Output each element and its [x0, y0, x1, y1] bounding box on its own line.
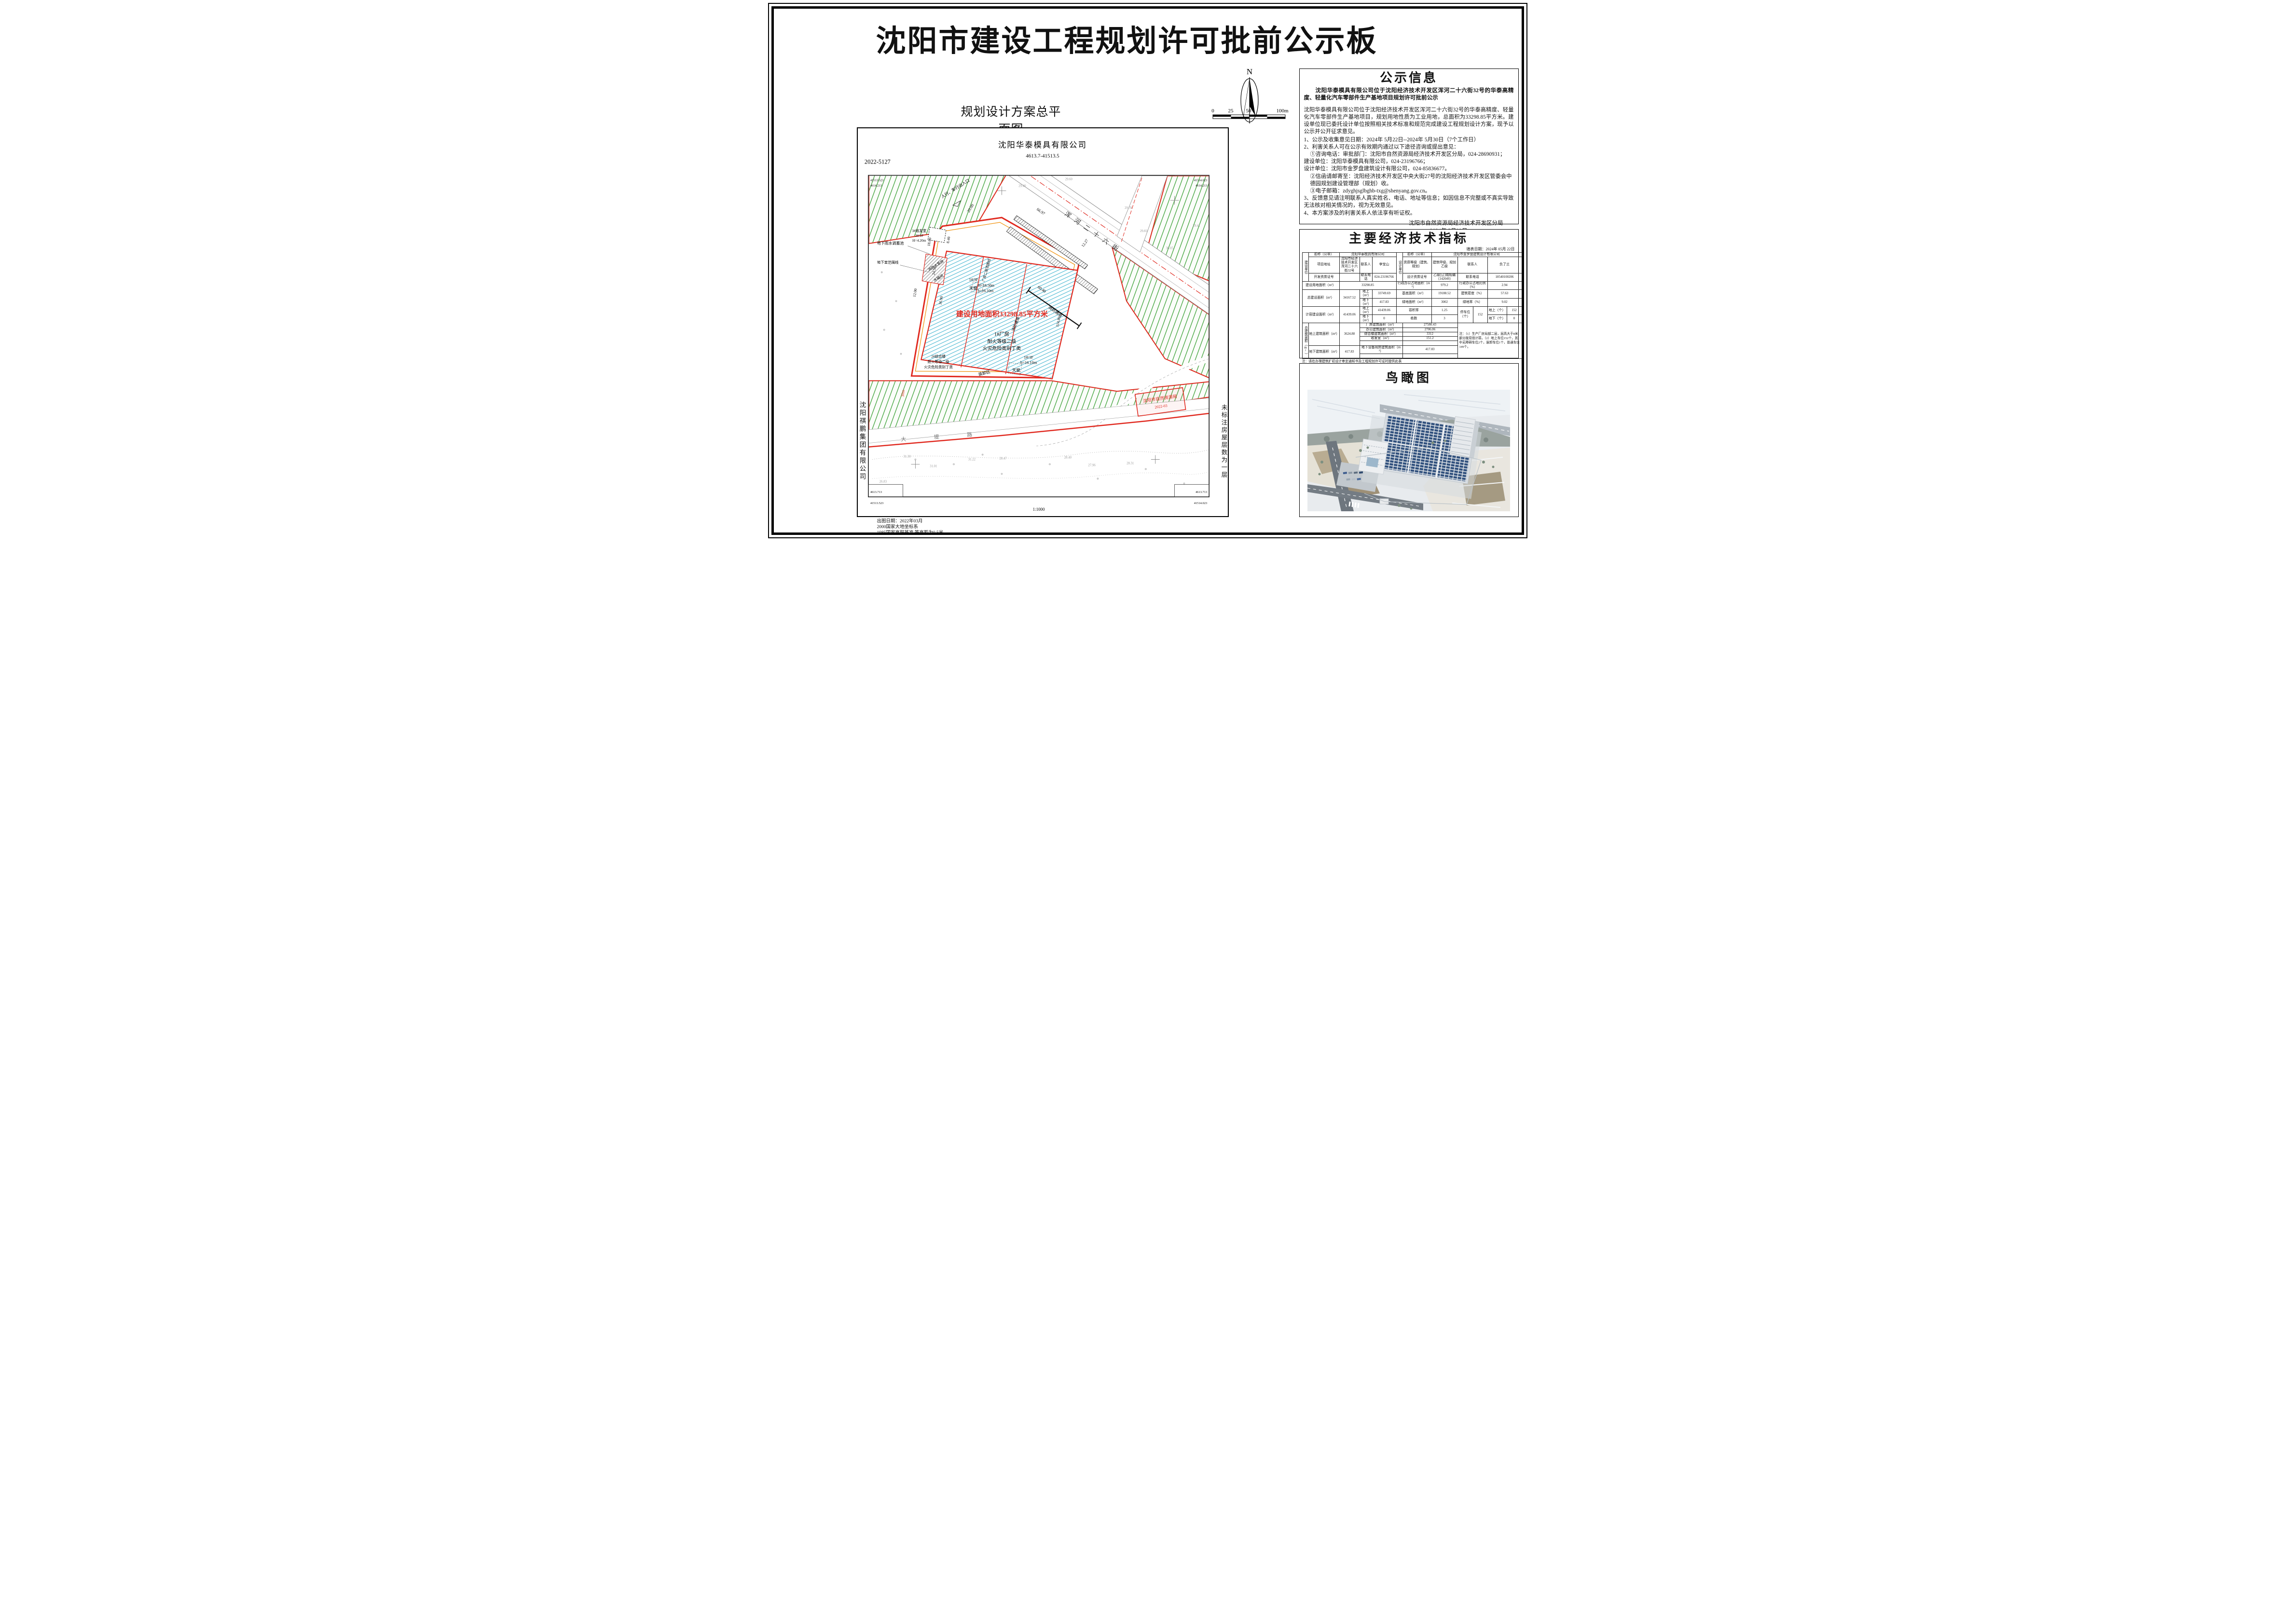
cell: 沈阳市经济技术开发区浑河二十六街32号: [1339, 257, 1360, 273]
indicators-date: 填表日期：2024年 05月 22日: [1302, 247, 1515, 252]
cell-gfa: 总建筑面积（m²）: [1302, 323, 1308, 359]
cell: 3002: [1431, 298, 1457, 306]
notice-items: 1、公示及收集意见日期：2024年 5月22日--2024年 5月30日（7个工…: [1304, 136, 1514, 217]
plan-company-name: 沈阳华泰模具有限公司: [998, 140, 1087, 150]
cell: 建筑密度（%）: [1457, 290, 1487, 298]
cell: 总建设面积（m²）: [1302, 290, 1339, 307]
cell: 收发室（m²）: [1360, 336, 1402, 341]
svg-text:26.83: 26.83: [879, 480, 887, 483]
complex-building-label: 2#综合楼: [931, 354, 946, 359]
cell: 地上（m²）: [1360, 290, 1372, 298]
svg-text:27.96: 27.96: [1088, 464, 1096, 467]
svg-text:31.22: 31.22: [968, 458, 975, 462]
scale-bar: 0 25 50 100m: [1210, 107, 1292, 123]
site-plan-drawing: 沈阳华泰模具有限公司 4613.7-41513.5 2022-5127: [858, 128, 1228, 516]
cell: 绿地面积（m²）: [1396, 298, 1431, 306]
cell: 18540100206: [1487, 273, 1522, 281]
page-title: 沈阳市建设工程规划许可批前公示板: [876, 24, 1339, 59]
cell-unit-left: 建设单位: [1302, 253, 1308, 282]
svg-text:41513.523: 41513.523: [870, 178, 883, 182]
cell: 地下（m²）: [1360, 298, 1372, 306]
notice-signature: 沈阳市自然资源局经济技术开发区分局: [1304, 219, 1514, 227]
cell: 联系电话: [1360, 273, 1372, 281]
cell: 名称（公章）: [1402, 253, 1431, 257]
cell: 9.02: [1487, 298, 1522, 306]
table-row: 项目地址 沈阳市经济技术开发区浑河二十六街32号 联系人 李宝山 资质等级（建筑…: [1302, 257, 1522, 273]
rain-tank-label: 地下雨水调蓄池: [877, 241, 904, 246]
cell: [1360, 354, 1402, 359]
cell: [1360, 341, 1402, 345]
basement-line-label: 地下室范围线: [877, 260, 898, 265]
cell: 地上建筑面积（m²）: [1308, 323, 1339, 346]
cell: 27580.43: [1402, 323, 1457, 328]
notice-title: 公示信息: [1304, 71, 1514, 85]
cell: 024-23196766: [1372, 273, 1396, 281]
scale-tick: 25: [1228, 108, 1234, 114]
table-row: 计容建设面积（m²） 41439.06 地上（m²） 41439.06 容积率 …: [1302, 306, 1522, 314]
skylight-label: 天窗: [969, 286, 977, 290]
indicators-section: 主要经济技术指标 填表日期：2024年 05月 22日 建设单位 名称（公章） …: [1299, 229, 1519, 358]
height-label: h=16.10m: [1020, 360, 1037, 365]
cell: 417.83: [1402, 345, 1457, 354]
svg-text:4613.713: 4613.713: [870, 491, 881, 494]
fire-grade-label: 耐火等级二级: [927, 359, 949, 364]
notice-item: ③电子邮箱：zdyghjsglbghb-txg@shenyang.gov.cn。: [1304, 188, 1514, 195]
building-floors-label: 1#/1F: [1024, 355, 1033, 360]
cell: 417.83: [1339, 345, 1360, 358]
cell: 979.2: [1431, 281, 1457, 289]
cell: 建筑甲级、规划乙级: [1431, 257, 1457, 273]
cell: 152: [1473, 306, 1487, 323]
svg-text:28.40: 28.40: [1064, 456, 1072, 460]
cell: 地上（个）: [1487, 306, 1507, 314]
hazard-class-label: 火灾危险类别丁类: [982, 345, 1021, 352]
notice-item: 建设单位：沈阳华泰模具有限公司，024-23196766；: [1304, 158, 1514, 165]
cell: 沈阳华泰模具有限公司: [1339, 253, 1396, 257]
cell: 厂房建筑面积（m²）: [1360, 323, 1402, 328]
cell: 联系人: [1360, 257, 1372, 273]
notice-body: 沈阳华泰模具有限公司位于沈阳经济技术开发区浑河二十六街32号的华泰高精度、轻量化…: [1304, 107, 1514, 136]
skylight-label: 天窗: [1012, 368, 1020, 372]
cell: 0: [1372, 315, 1396, 323]
plan-note-date: 出图日期：2022年03月: [877, 519, 923, 524]
cell: 容积率: [1396, 306, 1431, 314]
cell: 资质等级（建筑、规划）: [1402, 257, 1431, 273]
svg-text:29.60: 29.60: [1065, 177, 1072, 181]
site-plan-sheet: 沈阳华泰模具有限公司 4613.7-41513.5 2022-5127: [857, 127, 1229, 517]
compass-n-label: N: [1246, 67, 1252, 76]
cell: 地下（m²）: [1360, 315, 1372, 323]
cell: [1339, 273, 1360, 281]
cell: 联系电话: [1457, 273, 1487, 281]
notice-item: 1、公示及收集意见日期：2024年 5月22日--2024年 5月30日（7个工…: [1304, 136, 1514, 144]
cell: 联系人: [1457, 257, 1487, 273]
cell: 地下建筑面积（m²）: [1308, 345, 1339, 358]
cell: 负了兰: [1487, 257, 1522, 273]
cell: 33749.69: [1372, 290, 1396, 298]
cell: 行政办公占地比例（%）: [1457, 281, 1487, 289]
table-row: 总建筑面积（m²） 地上建筑面积（m²） 3624.88 厂房建筑面积（m²） …: [1302, 323, 1522, 328]
cell: 设计资质证号: [1402, 273, 1431, 281]
svg-text:31.30: 31.30: [903, 455, 911, 459]
cell: 办公建筑面积（m²）: [1360, 328, 1402, 332]
cell: 152: [1507, 306, 1522, 314]
cell: 建设用地面积（m²）: [1302, 281, 1339, 289]
cell-note: 注：（1）生产厂房局部二层，层高大于8米部分按双倍计容。（2）地上车位152个，…: [1457, 323, 1522, 359]
svg-text:41514.023: 41514.023: [1194, 502, 1207, 505]
table-row: 开发资质证号 联系电话 024-23196766 设计资质证号 乙级[辽]城规编…: [1302, 273, 1522, 281]
cell: 乙级[辽]城规编（142049）: [1431, 273, 1457, 281]
plan-scale-label: 1:1000: [1032, 507, 1044, 512]
fire-grade-label: 耐火等级二级: [987, 338, 1016, 344]
cell: 57.63: [1487, 290, 1522, 298]
svg-text:41513.523: 41513.523: [870, 502, 883, 505]
cell: 3624.88: [1339, 323, 1360, 346]
cell: 地下设备用房建筑面积（m²）: [1360, 345, 1402, 354]
plan-drawing-number: 2022-5127: [864, 159, 890, 165]
indicators-table: 建设单位 名称（公章） 沈阳华泰模具有限公司 设计单位 名称（公章） 沈阳市金罗…: [1302, 252, 1522, 359]
cell: 基底面积（m²）: [1396, 290, 1431, 298]
aerial-title: 鸟瞰图: [1300, 370, 1518, 386]
table-row: 总建设面积（m²） 34167.52 地上（m²） 33749.69 基底面积（…: [1302, 290, 1522, 298]
cell: 2.94: [1487, 281, 1522, 289]
cell: 地上（m²）: [1360, 306, 1372, 314]
cell: [1402, 354, 1457, 359]
building-floors-label: 1#/3F: [969, 277, 978, 282]
table-row: 建设单位 名称（公章） 沈阳华泰模具有限公司 设计单位 名称（公章） 沈阳市金罗…: [1302, 253, 1522, 257]
dimension-label: 30m: [900, 389, 905, 397]
aerial-section: 鸟瞰图: [1299, 363, 1519, 517]
svg-text:29.83: 29.83: [1140, 230, 1147, 233]
plan-company-ref: 4613.7-41513.5: [1026, 153, 1059, 159]
svg-text:41514.023: 41514.023: [1194, 178, 1207, 182]
cell-unit-right: 设计单位: [1396, 253, 1402, 282]
cell: 417.83: [1372, 298, 1396, 306]
svg-text:4614.213: 4614.213: [870, 184, 881, 187]
cell: 地下（个）: [1487, 315, 1507, 323]
cell: 2706.06: [1402, 328, 1457, 332]
svg-text:30.05: 30.05: [1166, 247, 1173, 250]
cell: 行政办公占地面积（m²）: [1396, 281, 1431, 289]
cell: 沈阳市金罗盘建筑设计有限公司: [1431, 253, 1522, 257]
svg-text:28.47: 28.47: [999, 457, 1007, 461]
mail-room-label: 3#收发室: [912, 228, 926, 233]
svg-text:4613.713: 4613.713: [1196, 491, 1207, 494]
height-label: h=16.10m: [977, 288, 993, 293]
building-floors-label: 3#/1F: [915, 233, 923, 238]
svg-text:29.78: 29.78: [1125, 206, 1132, 210]
cell: 停车位（个）: [1457, 306, 1473, 323]
height-label: H=18.50m: [977, 283, 994, 287]
scale-tick: 0: [1211, 108, 1214, 114]
notice-board: 沈阳市建设工程规划许可批前公示板 规划设计方案总平面图 N 0 25 50 10…: [765, 0, 1530, 541]
cell: 0: [1507, 315, 1522, 323]
svg-text:29.41: 29.41: [1193, 224, 1200, 228]
svg-text:29.40: 29.40: [1018, 184, 1026, 188]
cell: 名称（公章）: [1308, 253, 1339, 257]
notice-item: 设计单位：沈阳市金罗盘建筑设计有限公司，024-85836677。: [1304, 165, 1514, 173]
scale-tick: 100m: [1276, 108, 1289, 114]
plan-note-elevation: 1985国家高程基准,等高距为0.5米.: [877, 531, 945, 536]
cell: 3: [1431, 315, 1457, 323]
cell: 151.2: [1402, 336, 1457, 341]
cell: 33298.85: [1339, 281, 1396, 289]
cell: 开发资质证号: [1308, 273, 1339, 281]
cell: 1.25: [1431, 306, 1457, 314]
scale-tick: 50: [1246, 108, 1251, 114]
right-vertical-note-label: 未标注房屋层数为一层: [1220, 404, 1228, 515]
cell: 3312: [1402, 332, 1457, 336]
svg-text:28.31: 28.31: [1127, 462, 1134, 465]
plan-note-datum: 2000国家大地坐标系: [877, 525, 919, 530]
cell: 计容建设面积（m²）: [1302, 306, 1339, 323]
hazard-class-label: 火灾危险类别丁类: [924, 365, 953, 369]
notice-item: ①咨询电话：审批部门：沈阳市自然资源局经济技术开发区分局，024-2869093…: [1304, 151, 1514, 158]
site-area-label: 建设用地面积33298.85平方米: [956, 310, 1047, 318]
cell: 41439.06: [1339, 306, 1360, 323]
cell: 李宝山: [1372, 257, 1396, 273]
left-vertical-company-label: 沈阳祺鹏集团有限公司: [857, 401, 867, 515]
svg-text:4614.213: 4614.213: [1196, 184, 1207, 187]
factory-label: 1#厂房: [994, 331, 1009, 337]
cell: 41439.06: [1372, 306, 1396, 314]
table-row: 建设用地面积（m²） 33298.85 行政办公占地面积（m²） 979.2 行…: [1302, 281, 1522, 289]
cell: 项目地址: [1308, 257, 1339, 273]
cell: 综合楼建筑面积（m²）: [1360, 332, 1402, 336]
aerial-photo: [1307, 390, 1510, 511]
cell: 34167.52: [1339, 290, 1360, 307]
notice-item: ②信函请邮寄至：沈阳经济技术开发区中央大街27号的沈阳经济技术开发区管委会中德园…: [1304, 173, 1514, 188]
notice-item: 2、利害关系人可在公示有效期内通过以下途径咨询或提出意见：: [1304, 144, 1514, 151]
height-label: H=4.20m: [912, 238, 926, 243]
cell: 栋数: [1396, 315, 1431, 323]
cell: 绿地率（%）: [1457, 298, 1487, 306]
cell: [1402, 341, 1457, 345]
notice-section: 公示信息 沈阳华泰模具有限公司位于沈阳经济技术开发区浑河二十六街32号的华泰高精…: [1299, 68, 1519, 224]
indicators-title: 主要经济技术指标: [1302, 231, 1516, 246]
notice-item: 3、反馈意见请注明联系人真实姓名、电话、地址等信息；如因信息不完整或不真实导致无…: [1304, 195, 1514, 209]
cell: 19188.52: [1431, 290, 1457, 298]
notice-item: 4、本方案涉及的利害关系人依法享有听证权。: [1304, 210, 1514, 217]
notice-headline: 沈阳华泰模具有限公司位于沈阳经济技术开发区浑河二十六街32号的华泰高精度、轻量化…: [1304, 87, 1514, 102]
svg-text:31.01: 31.01: [930, 465, 937, 468]
